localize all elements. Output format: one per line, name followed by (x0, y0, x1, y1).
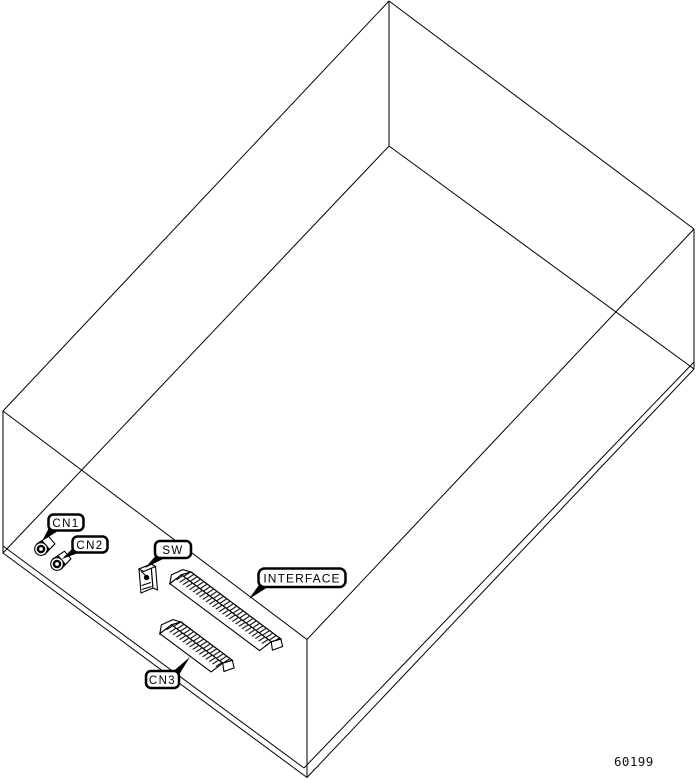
callout-cn3-label: CN3 (149, 675, 176, 687)
sw-switch (139, 564, 158, 593)
bottom-face-back-right-edge (389, 146, 694, 369)
bottom-front-right-edge (307, 369, 694, 778)
callout-cn1-label: CN1 (52, 518, 79, 530)
callout-sw-label: SW (162, 545, 183, 557)
technical-drawing: CN1 CN2 SW INTERFACE CN3 60199 (0, 0, 696, 783)
chassis-wireframe (3, 1, 694, 778)
callout-cn2: CN2 (62, 537, 108, 560)
sw-switch-toggle (144, 575, 149, 580)
cn2-connector-face (51, 558, 64, 571)
top-face-back-right-edge (389, 1, 694, 229)
callout-cn2-label: CN2 (76, 540, 103, 552)
top-face-front-right-edge (307, 229, 694, 640)
callout-cn3: CN3 (146, 657, 190, 688)
base-seam-right (304, 362, 694, 768)
callout-sw: SW (145, 541, 191, 568)
cn1-connector-face (35, 543, 48, 556)
callout-interface: INTERFACE (249, 569, 346, 600)
figure-number: 60199 (614, 754, 654, 769)
callout-interface-label: INTERFACE (263, 572, 340, 586)
